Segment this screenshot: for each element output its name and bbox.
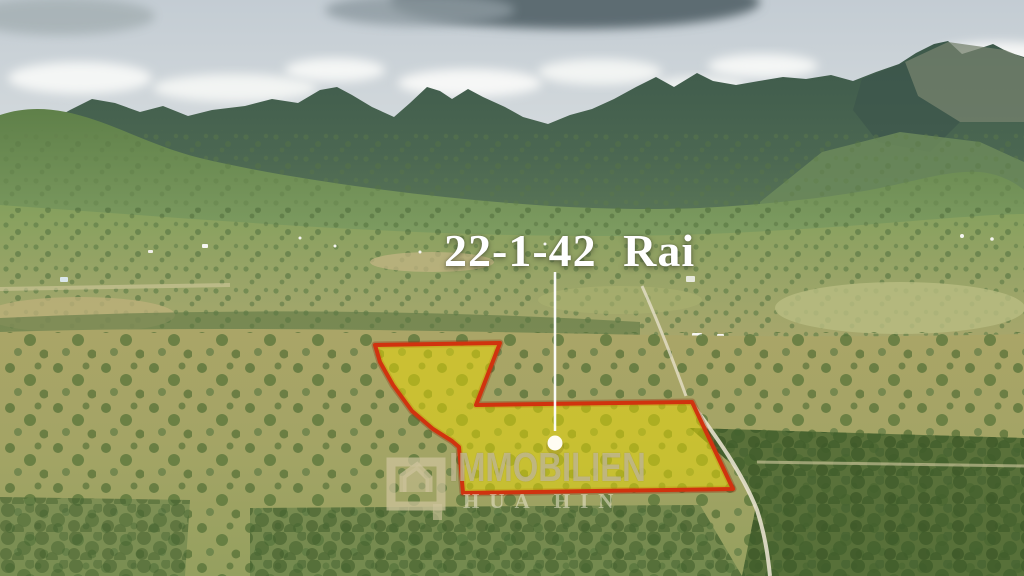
aerial-photo-listing: 22-1-42 Rai IMMOBILIEN HUA HIN bbox=[0, 0, 1024, 576]
field-patch bbox=[538, 286, 702, 314]
watermark-location: HUA HIN bbox=[463, 491, 623, 512]
pale-field bbox=[775, 282, 1024, 334]
area-label: 22-1-42 Rai bbox=[444, 224, 695, 277]
watermark-brand: IMMOBILIEN bbox=[449, 447, 646, 488]
house-outline-icon bbox=[383, 446, 453, 522]
